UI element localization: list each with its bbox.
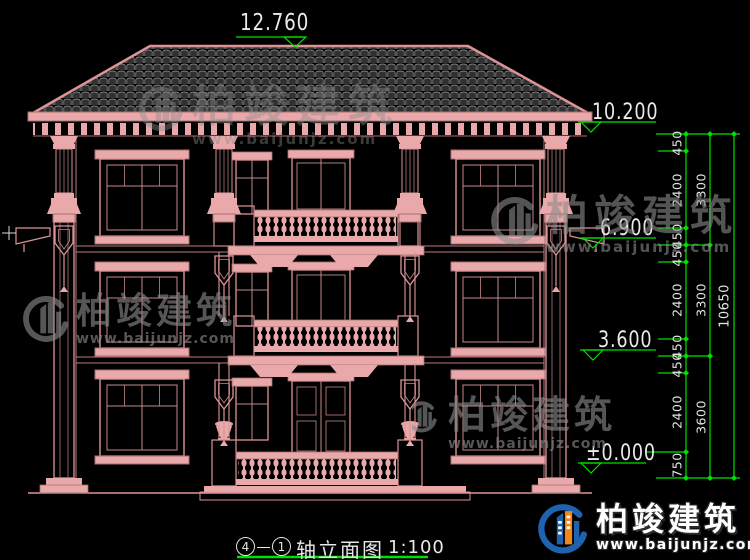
watermark-name: 柏竣建筑	[76, 293, 236, 331]
dim-value: 450	[670, 352, 685, 377]
brand-name: 柏竣建筑	[596, 503, 750, 537]
elevation-value-roof: 10.200	[592, 100, 658, 125]
watermark-name: 柏竣建筑	[546, 194, 738, 238]
watermark-url: www.baijunjz.com	[546, 238, 738, 256]
building-logo-icon	[490, 194, 542, 250]
watermark: 柏竣建筑 www.baijunjz.com	[412, 396, 616, 452]
dim-value: 750	[670, 452, 685, 477]
balcony-3f	[228, 206, 424, 267]
building-logo-icon	[412, 396, 446, 446]
dim-value: 2400	[670, 283, 685, 317]
watermark: 柏竣建筑 www.baijunjz.com	[490, 194, 738, 256]
watermark-url: www.baijunjz.com	[448, 436, 616, 452]
dim-value: 3300	[694, 283, 709, 317]
axis-bubble-end: 1	[272, 537, 291, 556]
brand-url: www.baijunjz.com	[596, 537, 750, 553]
balcony-2f	[228, 316, 424, 377]
axis-bubble-start: 4	[236, 537, 255, 556]
dim-value-total: 10650	[718, 284, 733, 328]
watermark-url: www.baijunjz.com	[192, 130, 400, 148]
drawing-title-label: 轴立面图	[296, 534, 384, 560]
watermark-name: 柏竣建筑	[192, 84, 400, 130]
left-edge-mark	[2, 226, 16, 240]
brand-logo: 柏竣建筑 www.baijunjz.com	[536, 503, 750, 557]
watermark: 柏竣建筑 www.baijunjz.com	[138, 84, 400, 148]
drawing-scale: 1:100	[388, 537, 445, 558]
watermark: 柏竣建筑 www.baijunjz.com	[22, 293, 236, 347]
axis-separator	[257, 547, 270, 548]
building-logo-icon	[138, 84, 186, 136]
elevation-value-2f: 3.600	[598, 328, 652, 353]
top-elevation-value: 12.760	[240, 10, 309, 36]
cad-elevation-canvas: 12.760 10.200 6.900 3.600 ±0.000 450 240…	[0, 0, 750, 560]
dim-value: 3600	[694, 400, 709, 434]
watermark-name: 柏竣建筑	[448, 396, 616, 436]
building-logo-icon	[22, 293, 72, 347]
watermark-url: www.baijunjz.com	[76, 331, 236, 347]
dim-value: 2400	[670, 395, 685, 429]
dim-value: 450	[670, 130, 685, 155]
building-logo-icon	[536, 503, 592, 557]
